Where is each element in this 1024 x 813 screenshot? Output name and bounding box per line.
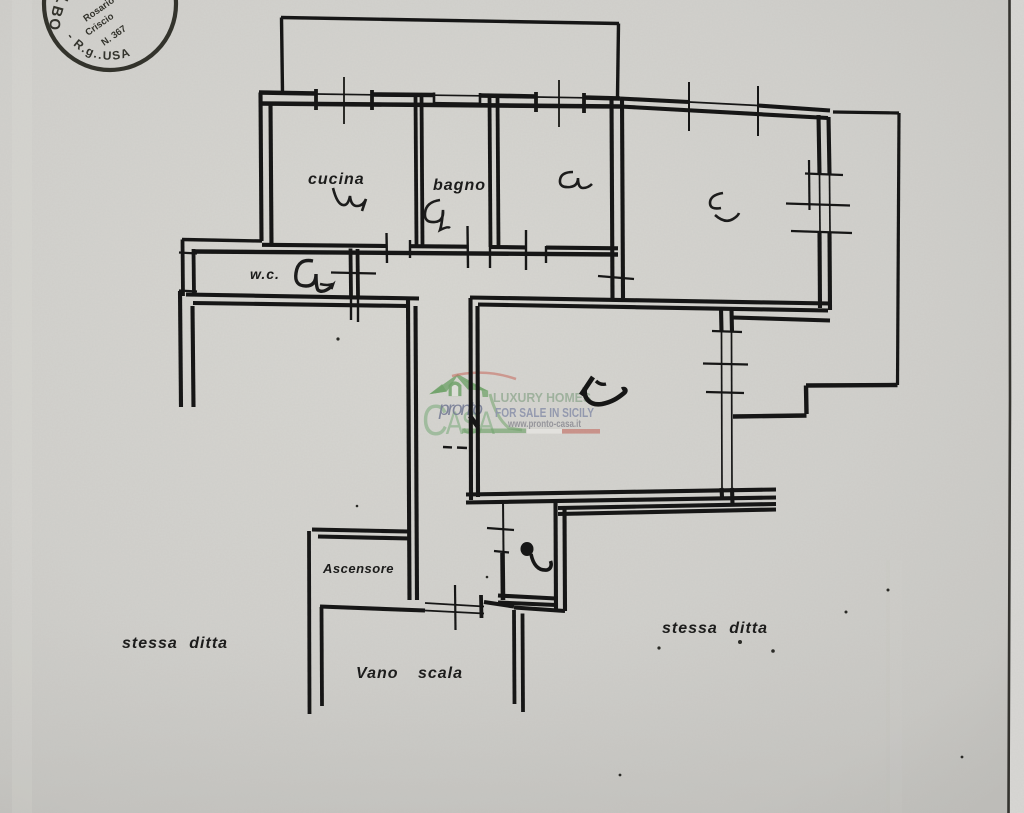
svg-text:w.c.: w.c.: [250, 266, 280, 282]
svg-text:stessa ditta: stessa ditta: [122, 635, 228, 652]
svg-text:stessa ditta: stessa ditta: [662, 620, 768, 637]
svg-text:cucina: cucina: [308, 171, 365, 188]
svg-text:Ascensore: Ascensore: [322, 561, 394, 576]
svg-text:LUXURY HOMES: LUXURY HOMES: [493, 390, 591, 405]
svg-text:www.pronto-casa.it: www.pronto-casa.it: [507, 418, 581, 430]
svg-text:bagno: bagno: [433, 177, 486, 194]
svg-text:Vano scala: Vano scala: [356, 665, 463, 682]
